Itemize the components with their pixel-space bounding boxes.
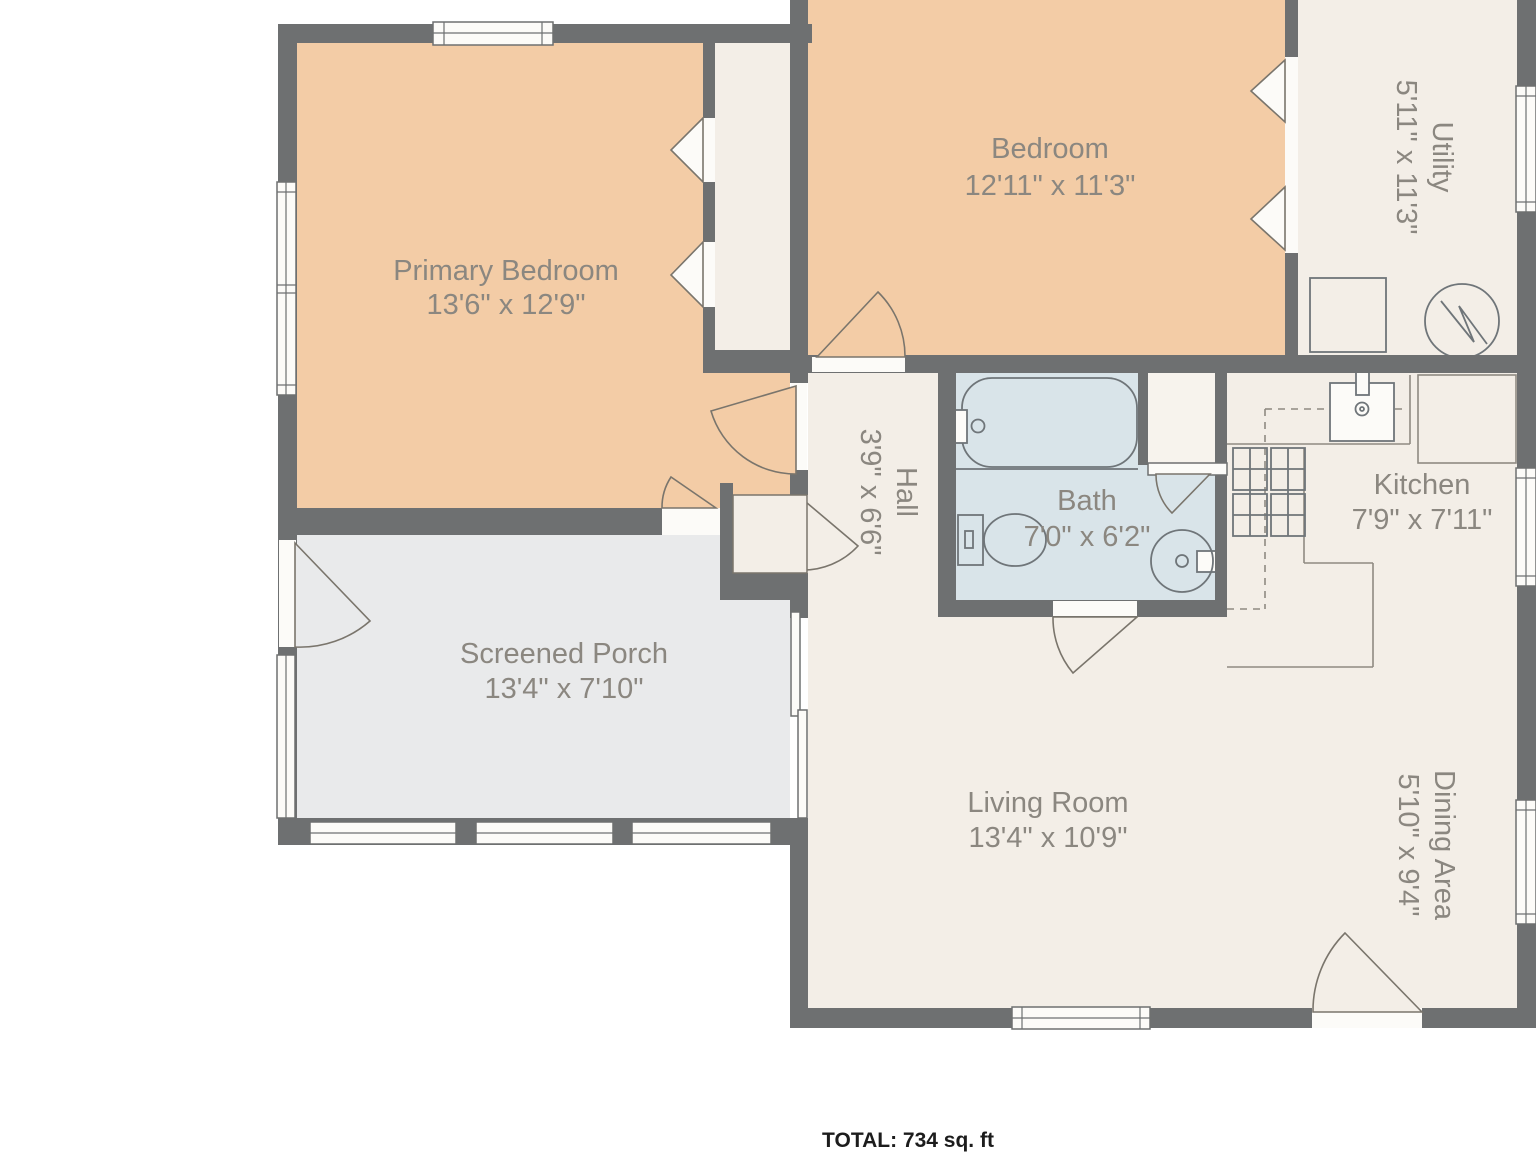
- label-kitchen-dims: 7'9" x 7'11": [1352, 504, 1493, 536]
- label-dining-dims: 5'10" x 9'4": [1392, 774, 1424, 917]
- label-hall-name: Hall: [890, 467, 922, 517]
- porch-screen-panel-left: [277, 655, 295, 818]
- window-kitchen-right: [1516, 468, 1536, 586]
- label-utility-name: Utility: [1426, 122, 1458, 193]
- primary-closet: [715, 43, 790, 353]
- label-primary-bedroom-name: Primary Bedroom: [393, 255, 619, 287]
- label-bath-name: Bath: [1057, 485, 1117, 517]
- window-utility-right: [1516, 86, 1536, 212]
- label-utility-dims: 5'11" x 11'3": [1390, 80, 1422, 235]
- label-porch-dims: 13'4" x 7'10": [484, 673, 643, 705]
- window-primary-left: [277, 182, 296, 395]
- porch-screen-panels-bottom: [310, 822, 771, 844]
- window-primary-top: [433, 22, 553, 45]
- label-kitchen-name: Kitchen: [1374, 469, 1471, 501]
- hall-closet-box: [733, 495, 807, 573]
- window-living-bottom: [1012, 1007, 1150, 1029]
- total-area-label: TOTAL: 734 sq. ft: [822, 1129, 994, 1152]
- label-dining-name: Dining Area: [1428, 770, 1460, 921]
- label-living-name: Living Room: [967, 787, 1128, 819]
- label-bedroom-name: Bedroom: [991, 133, 1109, 165]
- bath-alcove: [1148, 372, 1215, 463]
- label-bedroom-dims: 12'11" x 11'3": [965, 170, 1136, 202]
- kitchen-faucet-icon: [1356, 370, 1369, 395]
- label-living-dims: 13'4" x 10'9": [968, 822, 1127, 854]
- label-primary-bedroom-dims: 13'6" x 12'9": [426, 289, 585, 321]
- label-bath-dims: 7'0" x 6'2": [1024, 521, 1151, 553]
- floorplan-svg: Primary Bedroom 13'6" x 12'9" Bedroom 12…: [0, 0, 1536, 1152]
- window-dining-right: [1516, 800, 1536, 924]
- floorplan-canvas: Primary Bedroom 13'6" x 12'9" Bedroom 12…: [0, 0, 1536, 1152]
- label-hall-dims: 3'9" x 6'6": [854, 429, 886, 556]
- porch-living-slider-window: [791, 612, 807, 818]
- label-porch-name: Screened Porch: [460, 638, 668, 670]
